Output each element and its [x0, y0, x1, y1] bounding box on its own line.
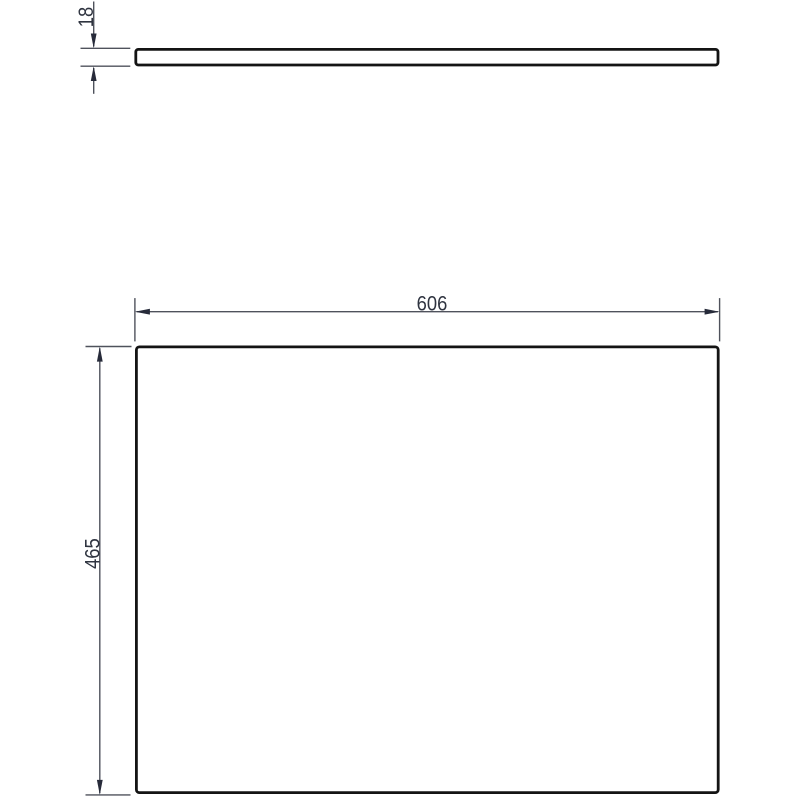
svg-text:18: 18: [75, 7, 98, 27]
svg-text:606: 606: [417, 293, 448, 316]
svg-text:465: 465: [82, 538, 105, 569]
